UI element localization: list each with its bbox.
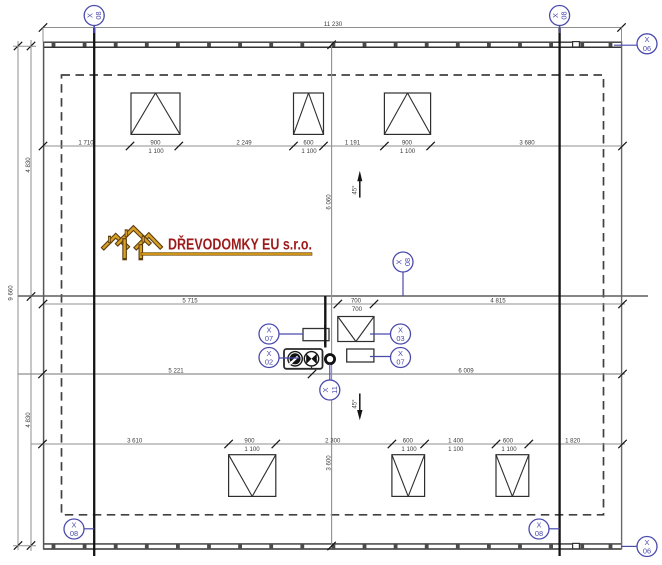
svg-text:5 221: 5 221 bbox=[168, 367, 184, 374]
svg-text:06: 06 bbox=[643, 547, 651, 556]
svg-text:1 100: 1 100 bbox=[400, 148, 416, 155]
svg-text:3 610: 3 610 bbox=[127, 438, 143, 445]
svg-text:1 100: 1 100 bbox=[301, 148, 317, 155]
svg-text:1 100: 1 100 bbox=[148, 148, 164, 155]
svg-text:45°: 45° bbox=[352, 399, 359, 409]
svg-text:1 100: 1 100 bbox=[501, 446, 517, 453]
svg-text:02: 02 bbox=[265, 358, 273, 367]
svg-text:1 191: 1 191 bbox=[345, 140, 361, 147]
svg-text:9 660: 9 660 bbox=[8, 285, 15, 301]
svg-text:07: 07 bbox=[396, 358, 404, 367]
svg-text:1 820: 1 820 bbox=[565, 438, 581, 445]
svg-text:08: 08 bbox=[535, 529, 543, 538]
svg-text:2 249: 2 249 bbox=[236, 140, 252, 147]
svg-text:3 600: 3 600 bbox=[326, 455, 333, 471]
svg-text:DŘEVODOMKY EU s.r.o.: DŘEVODOMKY EU s.r.o. bbox=[168, 234, 312, 253]
svg-text:11 230: 11 230 bbox=[324, 21, 343, 28]
svg-text:4 815: 4 815 bbox=[490, 298, 506, 305]
svg-text:4 830: 4 830 bbox=[25, 412, 32, 428]
svg-text:1 100: 1 100 bbox=[448, 446, 464, 453]
svg-text:1 400: 1 400 bbox=[448, 438, 464, 445]
svg-text:03: 03 bbox=[396, 334, 404, 343]
svg-text:06: 06 bbox=[643, 44, 651, 53]
svg-text:1 710: 1 710 bbox=[78, 140, 94, 147]
svg-text:700: 700 bbox=[351, 298, 362, 305]
svg-text:1 100: 1 100 bbox=[401, 446, 417, 453]
svg-text:5 715: 5 715 bbox=[182, 298, 198, 305]
svg-text:900: 900 bbox=[244, 438, 255, 445]
svg-text:600: 600 bbox=[503, 438, 514, 445]
svg-text:08: 08 bbox=[403, 258, 412, 266]
svg-text:2 300: 2 300 bbox=[325, 438, 341, 445]
svg-text:600: 600 bbox=[403, 438, 414, 445]
svg-text:08: 08 bbox=[94, 11, 103, 19]
svg-text:600: 600 bbox=[303, 140, 314, 147]
svg-text:08: 08 bbox=[560, 11, 569, 19]
svg-text:900: 900 bbox=[402, 140, 413, 147]
svg-text:700: 700 bbox=[352, 306, 363, 313]
svg-text:900: 900 bbox=[150, 140, 161, 147]
svg-text:6 009: 6 009 bbox=[458, 367, 474, 374]
svg-text:6 060: 6 060 bbox=[326, 194, 333, 210]
svg-text:4 830: 4 830 bbox=[25, 157, 32, 173]
svg-text:07: 07 bbox=[265, 334, 273, 343]
svg-text:08: 08 bbox=[70, 529, 78, 538]
svg-text:45°: 45° bbox=[352, 185, 359, 195]
svg-text:1 100: 1 100 bbox=[244, 446, 260, 453]
svg-text:11: 11 bbox=[330, 386, 339, 394]
svg-text:3 680: 3 680 bbox=[519, 140, 535, 147]
